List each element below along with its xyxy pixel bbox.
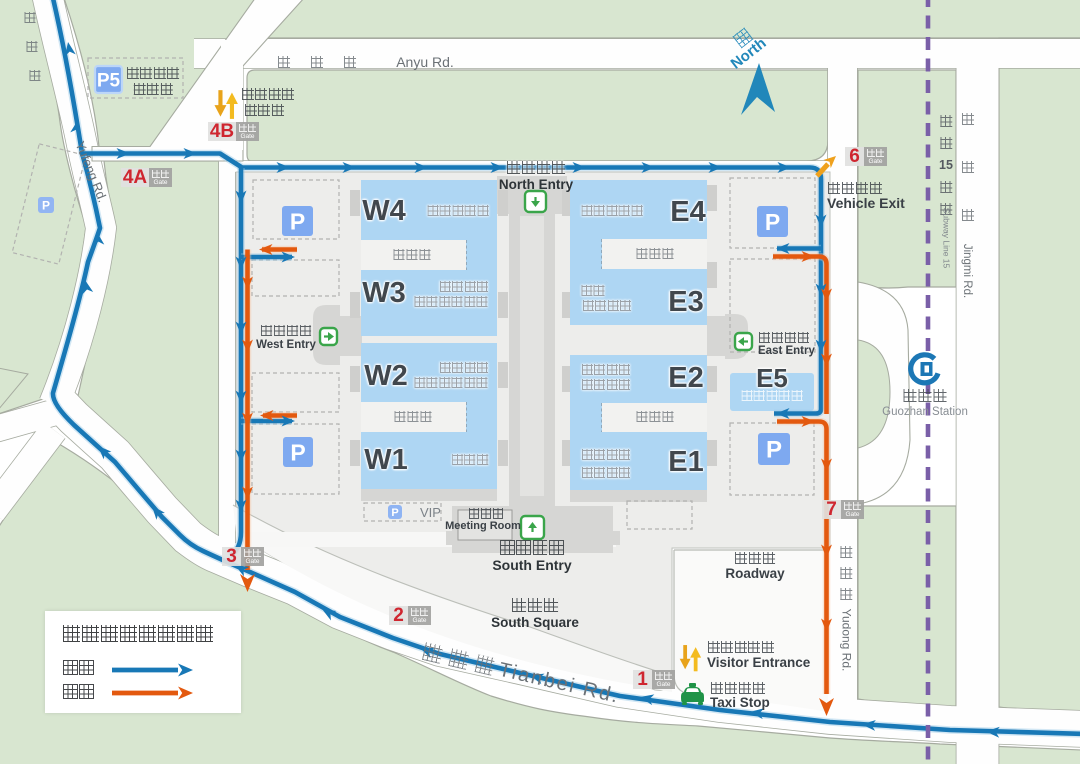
svg-text:P5: P5: [97, 70, 121, 91]
svg-text:P: P: [765, 209, 780, 235]
svg-text:P: P: [766, 437, 782, 464]
svg-text:P: P: [42, 198, 50, 212]
svg-text:P: P: [290, 208, 305, 234]
svg-text:P: P: [391, 507, 398, 519]
svg-text:P: P: [290, 439, 305, 465]
